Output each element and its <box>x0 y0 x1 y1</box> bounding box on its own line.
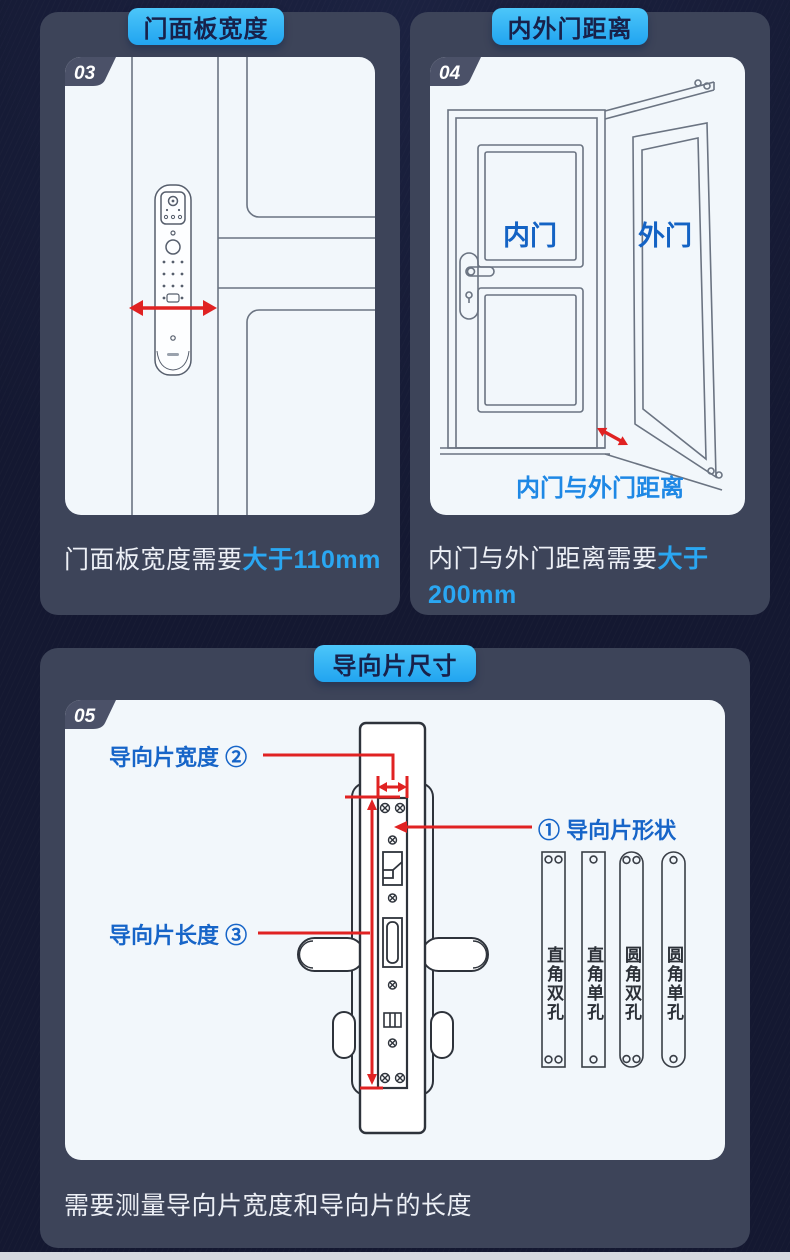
page-bottom-divider <box>0 1252 790 1260</box>
outer-door-drawing <box>633 123 716 477</box>
door-distance-card: 04 <box>430 57 745 515</box>
outer-door-label: 外门 <box>638 214 692 253</box>
guide-plate-caption: 需要测量导向片宽度和导向片的长度 <box>64 1186 472 1222</box>
panel-width-caption: 门面板宽度需要大于110mm <box>64 540 381 576</box>
door-distance-label: 内门与外门距离 <box>500 468 700 503</box>
panel-width-badge: 门面板宽度 <box>128 8 284 45</box>
guide-plate-length-label: 导向片长度 ③ <box>109 918 247 950</box>
caption-value: 200mm <box>428 581 517 609</box>
distance-measure-arrow <box>597 428 628 445</box>
double-door-diagram <box>430 57 745 515</box>
guide-plate-card: 05 <box>65 700 725 1160</box>
plate-type-label: 直角双孔 <box>542 908 565 1060</box>
plate-type-label: 直角单孔 <box>582 908 605 1060</box>
caption-plain: 内门与外门距离需要 <box>428 545 658 573</box>
step-03-tab: 03 <box>65 57 119 87</box>
step-05-number: 05 <box>74 706 96 727</box>
plate-type-label: 圆角单孔 <box>662 908 685 1060</box>
door-distance-badge: 内外门距离 <box>492 8 648 45</box>
inner-door-label: 内门 <box>503 214 557 253</box>
smart-lock-drawing <box>155 185 191 375</box>
panel-width-card: 03 <box>65 57 375 515</box>
caption-highlight: 大于110mm <box>243 546 381 574</box>
mortise-lock-drawing <box>298 723 488 1133</box>
guide-plate-width-label: 导向片宽度 ② <box>109 740 247 772</box>
plate-type-label: 圆角双孔 <box>620 908 643 1060</box>
step-04-number: 04 <box>439 63 461 84</box>
step-03-number: 03 <box>74 63 96 84</box>
caption-highlight: 大于 <box>658 545 709 573</box>
door-panel-diagram <box>65 57 375 515</box>
door-distance-caption: 内门与外门距离需要大于 200mm <box>428 541 758 613</box>
guide-plate-badge: 导向片尺寸 <box>314 645 476 682</box>
caption-plain: 门面板宽度需要 <box>64 546 243 574</box>
step-05-tab: 05 <box>65 700 119 730</box>
guide-plate-shape-label: ① 导向片形状 <box>538 813 676 845</box>
door-handle-drawing <box>460 253 494 319</box>
step-04-tab: 04 <box>430 57 484 87</box>
